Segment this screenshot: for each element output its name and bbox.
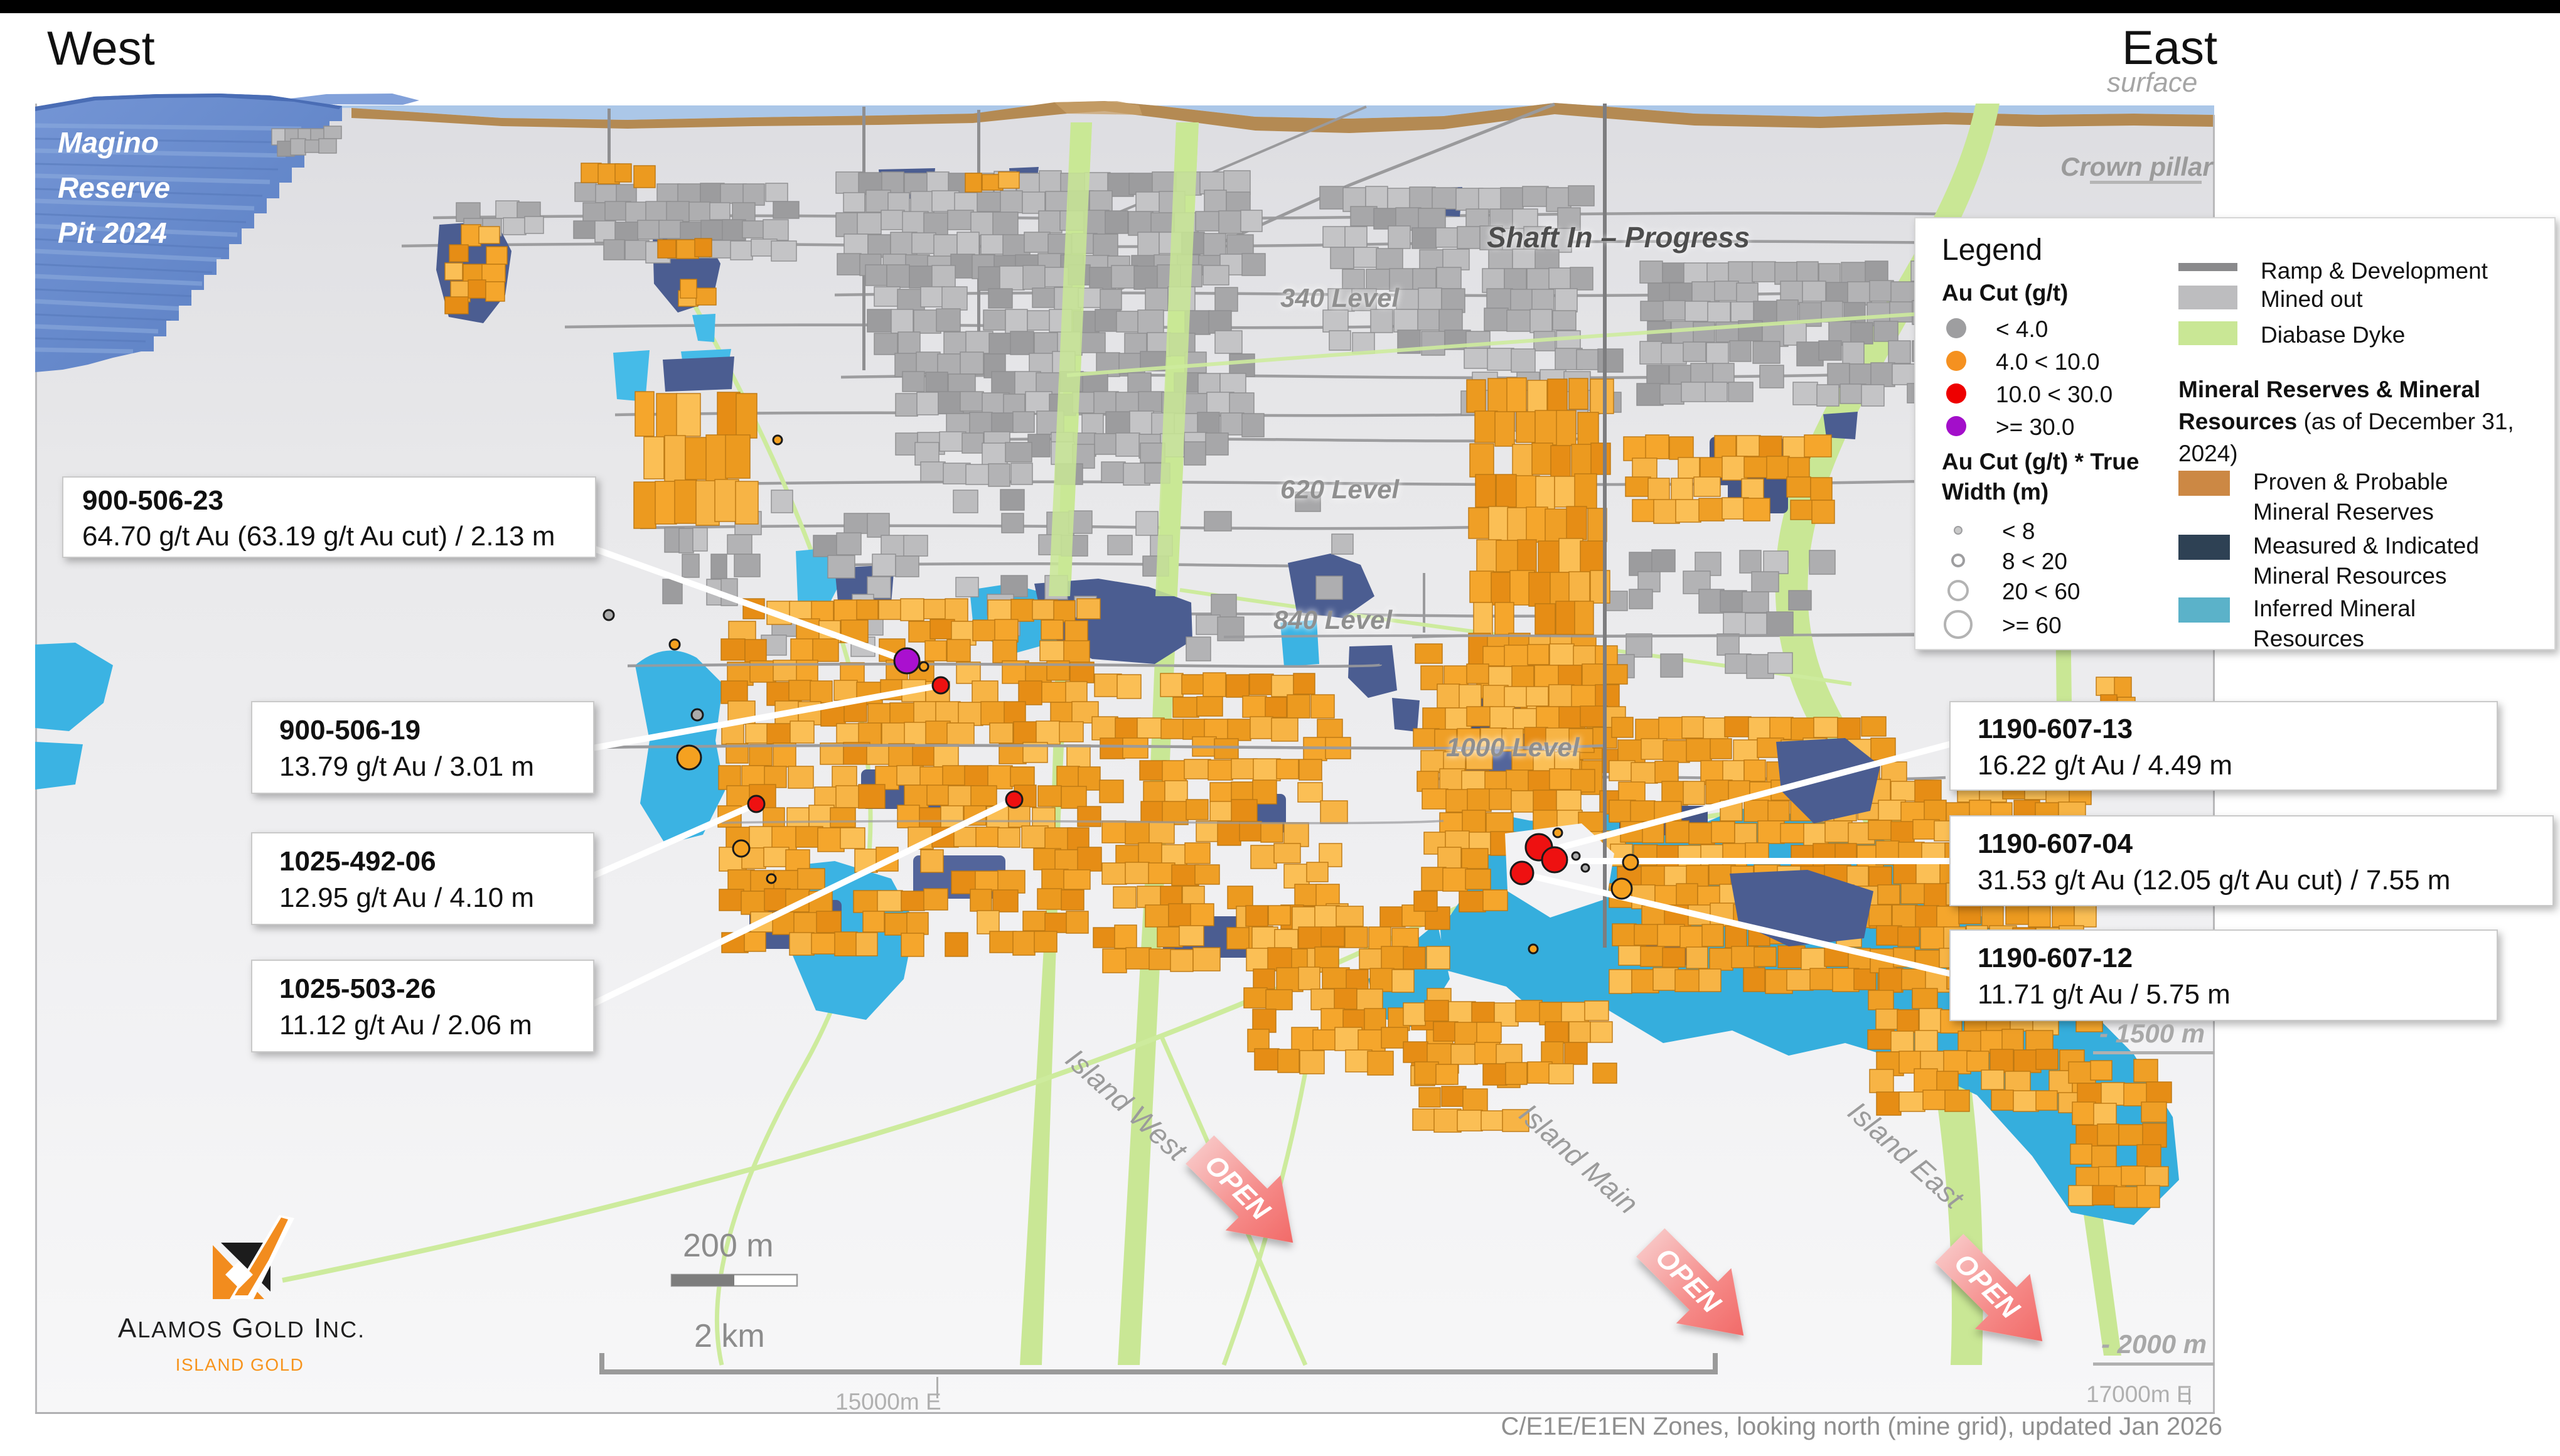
- svg-text:Magino: Magino: [58, 126, 159, 159]
- svg-text:1025-503-26: 1025-503-26: [279, 973, 436, 1004]
- svg-text:31.53 g/t Au (12.05 g/t Au cut: 31.53 g/t Au (12.05 g/t Au cut) / 7.55 m: [1978, 865, 2450, 896]
- svg-text:Mined out: Mined out: [2261, 286, 2363, 312]
- svg-text:< 8: < 8: [2002, 518, 2035, 544]
- svg-text:ISLAND GOLD: ISLAND GOLD: [176, 1355, 304, 1374]
- svg-text:1190-607-04: 1190-607-04: [1978, 828, 2133, 859]
- svg-text:1190-607-12: 1190-607-12: [1978, 943, 2133, 973]
- svg-text:2024): 2024): [2178, 441, 2238, 466]
- svg-text:Mineral Reserves & Mineral: Mineral Reserves & Mineral: [2178, 377, 2480, 402]
- svg-text:ALAMOS GOLD INC.: ALAMOS GOLD INC.: [118, 1313, 365, 1344]
- svg-text:13.79 g/t Au / 3.01 m: 13.79 g/t Au / 3.01 m: [279, 751, 534, 782]
- svg-text:1190-607-13: 1190-607-13: [1978, 714, 2133, 744]
- svg-text:16.22 g/t Au / 4.49 m: 16.22 g/t Au / 4.49 m: [1978, 750, 2232, 781]
- svg-text:- 1500 m: - 1500 m: [2099, 1019, 2205, 1048]
- svg-text:C/E1E/E1EN Zones, looking nort: C/E1E/E1EN Zones, looking north (mine gr…: [1501, 1413, 2222, 1440]
- svg-text:11.12 g/t Au / 2.06 m: 11.12 g/t Au / 2.06 m: [279, 1010, 532, 1041]
- svg-text:Inferred Mineral: Inferred Mineral: [2253, 596, 2416, 621]
- svg-text:1000 Level: 1000 Level: [1446, 732, 1580, 762]
- svg-text:Diabase Dyke: Diabase Dyke: [2261, 322, 2405, 348]
- svg-text:Proven & Probable: Proven & Probable: [2253, 469, 2448, 495]
- svg-text:11.71 g/t Au / 5.75 m: 11.71 g/t Au / 5.75 m: [1978, 979, 2231, 1010]
- svg-text:Legend: Legend: [1942, 233, 2042, 267]
- svg-text:- 2000 m: - 2000 m: [2101, 1329, 2207, 1359]
- svg-text:17000m E: 17000m E: [2086, 1381, 2192, 1407]
- svg-text:>= 60: >= 60: [2002, 613, 2062, 638]
- svg-text:8 < 20: 8 < 20: [2002, 549, 2067, 574]
- svg-text:Mineral Resources: Mineral Resources: [2253, 563, 2446, 589]
- svg-text:20 < 60: 20 < 60: [2002, 579, 2080, 604]
- svg-text:12.95 g/t Au / 4.10 m: 12.95 g/t Au / 4.10 m: [279, 882, 534, 913]
- svg-text:< 4.0: < 4.0: [1996, 316, 2048, 342]
- svg-text:200 m: 200 m: [683, 1228, 774, 1264]
- svg-text:Au Cut (g/t) * True: Au Cut (g/t) * True: [1942, 449, 2139, 474]
- svg-text:15000m E: 15000m E: [835, 1389, 941, 1415]
- svg-text:Reserve: Reserve: [58, 171, 170, 204]
- svg-text:Resources (as of December 31,: Resources (as of December 31,: [2178, 409, 2514, 434]
- svg-text:4.0 < 10.0: 4.0 < 10.0: [1996, 349, 2100, 375]
- svg-text:10.0 < 30.0: 10.0 < 30.0: [1996, 382, 2113, 407]
- svg-text:620 Level: 620 Level: [1280, 474, 1400, 504]
- svg-text:900-506-19: 900-506-19: [279, 715, 420, 746]
- svg-text:900-506-23: 900-506-23: [82, 485, 223, 516]
- svg-text:340 Level: 340 Level: [1280, 283, 1400, 313]
- svg-text:Resources: Resources: [2253, 626, 2364, 651]
- svg-text:Crown pillar: Crown pillar: [2060, 152, 2214, 181]
- svg-text:1025-492-06: 1025-492-06: [279, 846, 436, 877]
- svg-text:Measured & Indicated: Measured & Indicated: [2253, 533, 2479, 559]
- svg-text:West: West: [47, 22, 155, 75]
- svg-text:64.70 g/t Au (63.19 g/t Au cut: 64.70 g/t Au (63.19 g/t Au cut) / 2.13 m: [82, 521, 555, 552]
- svg-text:2 km: 2 km: [694, 1318, 765, 1354]
- svg-text:Mineral Reserves: Mineral Reserves: [2253, 499, 2434, 525]
- svg-text:Shaft In – Progress: Shaft In – Progress: [1487, 221, 1750, 254]
- svg-text:Pit 2024: Pit 2024: [58, 217, 167, 249]
- svg-text:840 Level: 840 Level: [1273, 605, 1393, 634]
- svg-text:Width (m): Width (m): [1942, 479, 2049, 505]
- svg-text:>= 30.0: >= 30.0: [1996, 414, 2075, 440]
- svg-text:Ramp & Development: Ramp & Development: [2261, 258, 2488, 284]
- svg-text:surface: surface: [2107, 67, 2197, 98]
- svg-text:Au Cut (g/t): Au Cut (g/t): [1942, 280, 2068, 306]
